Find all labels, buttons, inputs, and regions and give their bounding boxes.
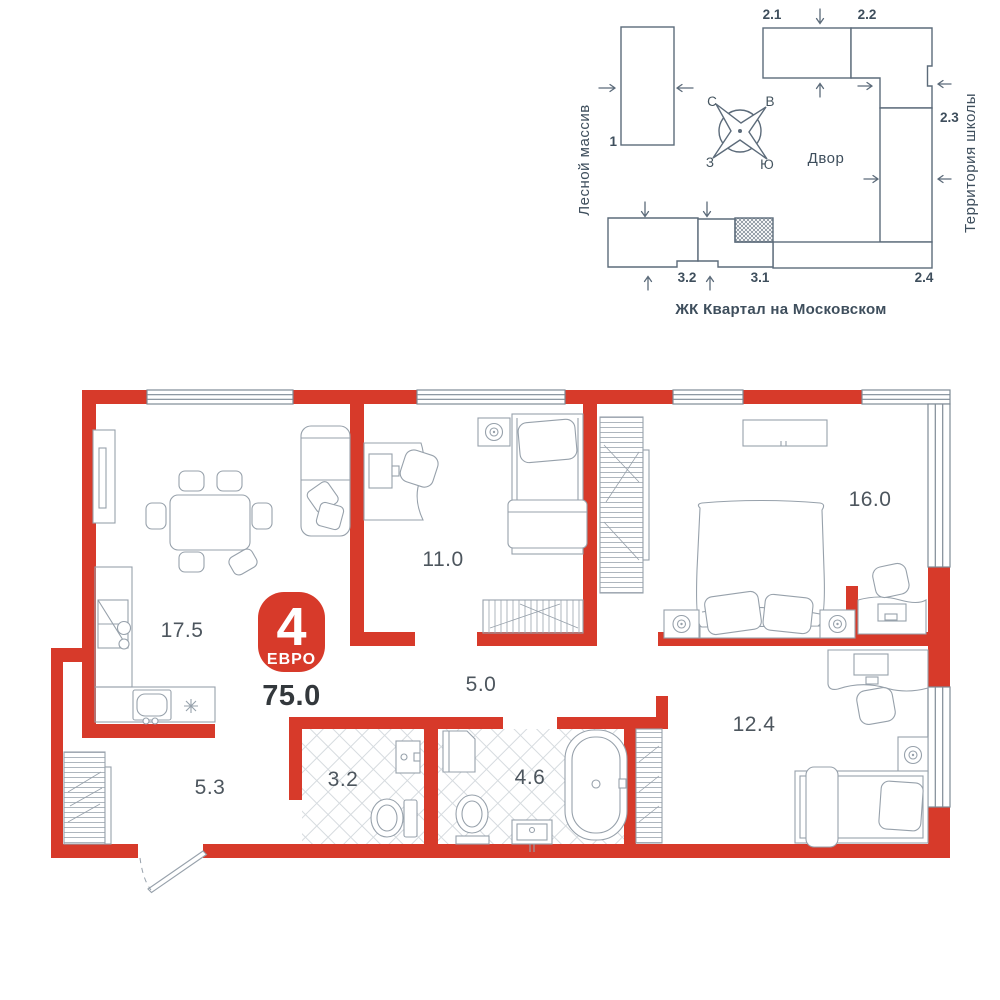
- bedroom1-lamp-icon: [478, 418, 510, 446]
- room-area-kitchen-living: 17.5: [161, 619, 204, 642]
- compass-east-label: В: [765, 94, 774, 109]
- window-bedroom2: [673, 390, 743, 404]
- arrow-left-icon: [938, 81, 951, 88]
- pillow-icon: [704, 590, 763, 635]
- stove-icon: [184, 699, 198, 713]
- bedroom1-desk-icon: [364, 443, 440, 520]
- hob-burner-icon: [119, 639, 129, 649]
- nightstand-lamp-icon: [664, 610, 699, 638]
- hob-burner-icon: [118, 622, 131, 635]
- tv-unit-icon: [93, 430, 115, 523]
- pillow-icon: [762, 594, 814, 635]
- nightstand-lamp-icon: [820, 610, 855, 638]
- bedroom1-dresser: [483, 600, 583, 633]
- dining-table-icon: [146, 471, 272, 577]
- hallway-wardrobe: [64, 752, 111, 844]
- bathroom1-sink-icon: [396, 741, 420, 773]
- compass-west-label: З: [706, 155, 714, 170]
- apartment-type-badge: 4 ЕВРО: [258, 592, 325, 672]
- building-label-3-2: 3.2: [678, 270, 697, 285]
- washing-machine-icon: [443, 731, 475, 772]
- site-building-2-1: [763, 28, 851, 78]
- arrow-down-icon: [704, 202, 711, 217]
- compass-south-label: Ю: [760, 157, 774, 172]
- bedroom3-wardrobe: [636, 729, 662, 843]
- bedroom2-top-wardrobe-icon: [743, 420, 827, 446]
- arrow-right-icon: [858, 83, 872, 90]
- bedroom3-bed-icon: [795, 767, 928, 847]
- right-area-label: Территория школы: [962, 93, 979, 233]
- bedroom1-bed-icon: [508, 414, 587, 554]
- site-building-1: [621, 27, 674, 145]
- bedroom2-desk-icon: [858, 562, 926, 634]
- complex-name-caption: ЖК Квартал на Московском: [674, 301, 886, 318]
- building-label-2-2: 2.2: [858, 7, 877, 22]
- window-bedroom1: [417, 390, 565, 404]
- building-label-1: 1: [609, 134, 617, 149]
- compass-north-label: С: [707, 94, 717, 109]
- arrow-right-icon: [599, 85, 615, 92]
- bathroom1-toilet-icon: [371, 799, 417, 837]
- building-label-3-1: 3.1: [751, 270, 770, 285]
- courtyard-label: Двор: [808, 150, 845, 167]
- corner-window: [862, 390, 950, 567]
- window-living: [147, 390, 293, 404]
- plan-canvas: С В З Ю 1 2.1 2.2 2.3 2.4 3.1 3.2 Лесной…: [0, 0, 1000, 1000]
- total-area-label: 75.0: [262, 680, 320, 712]
- arrow-up-icon: [817, 84, 824, 98]
- arrow-up-icon: [645, 277, 652, 291]
- arrow-down-icon: [817, 9, 824, 24]
- kitchen-sink-icon: [133, 690, 171, 724]
- building-label-2-1: 2.1: [763, 7, 782, 22]
- arrow-right-icon: [864, 176, 878, 183]
- arrow-up-icon: [707, 277, 714, 291]
- site-building-2-4: [773, 242, 932, 268]
- window-bedroom3: [928, 687, 950, 807]
- current-section-marker: [735, 218, 773, 242]
- building-label-2-3: 2.3: [940, 110, 959, 125]
- bedroom3-desk-icon: [828, 650, 928, 726]
- site-building-3-2: [608, 218, 698, 267]
- apartment-plan: 17.5 11.0 16.0 5.0 12.4 5.3 3.2 4.6 4 ЕВ…: [51, 390, 950, 893]
- room-area-bedroom1: 11.0: [422, 548, 463, 571]
- room-area-bathroom2: 4.6: [515, 766, 546, 789]
- pillow-icon: [878, 781, 923, 832]
- site-building-2-3: [880, 108, 932, 242]
- bathtub-icon: [565, 730, 627, 840]
- bedroom2-double-bed-icon: [697, 501, 825, 639]
- arrow-down-icon: [642, 202, 649, 217]
- bathroom2-toilet-icon: [456, 795, 489, 844]
- floorplan-page: С В З Ю 1 2.1 2.2 2.3 2.4 3.1 3.2 Лесной…: [0, 0, 1000, 1000]
- room-area-corridor: 5.0: [466, 673, 497, 696]
- site-building-2-2: [851, 28, 932, 108]
- room-area-bedroom2: 16.0: [849, 488, 892, 511]
- kitchen-counter: [95, 567, 215, 724]
- entrance-door-leaf: [148, 851, 207, 893]
- desk-chair-icon: [871, 562, 911, 599]
- rooms-count-label: 4: [276, 597, 306, 657]
- desk-chair-icon: [855, 686, 896, 726]
- building-label-2-4: 2.4: [915, 270, 934, 285]
- arrow-left-icon: [677, 85, 693, 92]
- compass-rose-icon: [713, 104, 767, 159]
- bedroom2-wardrobe: [600, 417, 649, 593]
- door-swing-arc: [140, 858, 151, 890]
- sofa-icon: [301, 426, 350, 536]
- format-label: ЕВРО: [267, 651, 316, 668]
- arrow-left-icon: [938, 176, 951, 183]
- room-area-bedroom3: 12.4: [733, 713, 776, 736]
- nightstand-lamp-icon: [898, 737, 928, 773]
- left-area-label: Лесной массив: [576, 104, 593, 215]
- room-area-hallway: 5.3: [195, 776, 226, 799]
- entrance-door: [140, 851, 207, 893]
- site-plan: С В З Ю 1 2.1 2.2 2.3 2.4 3.1 3.2 Лесной…: [576, 7, 979, 318]
- room-area-bathroom1: 3.2: [328, 768, 359, 791]
